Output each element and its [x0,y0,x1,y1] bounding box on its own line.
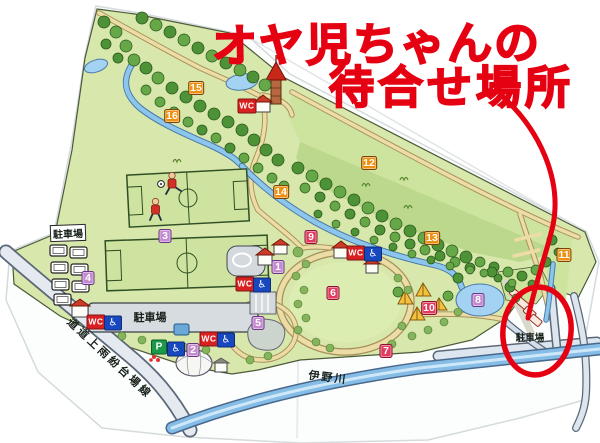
parking-central-strip [88,303,258,332]
handwritten-title-line2: 待合せ場所 [329,51,574,116]
park-map-screenshot: 12345678910111213141516WCWC♿WC♿WC♿WC♿P♿駐… [0,0,600,443]
pool-slide [174,324,189,335]
